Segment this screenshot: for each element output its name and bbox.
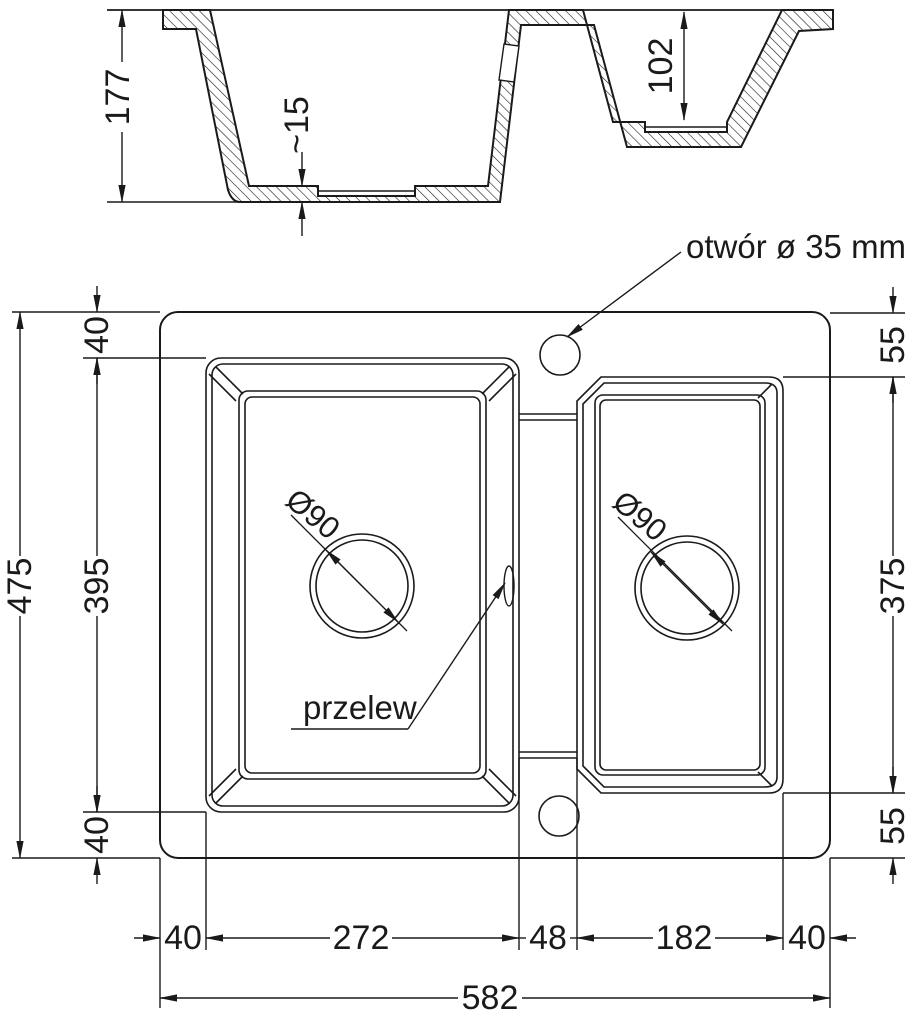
bowl-divider [519, 414, 577, 758]
dim-bottom-right-margin: 40 [788, 919, 826, 957]
section-overflow-gap [499, 44, 519, 82]
plan-dimension-lines [12, 286, 905, 1008]
dim-left-bowl-height: 395 [78, 558, 116, 615]
dim-bottom-thickness: ~15 [278, 96, 316, 154]
left-drain-diameter: Ø90 [279, 482, 346, 546]
dim-small-bowl-depth: 102 [642, 38, 680, 95]
overflow-label: przelew [303, 689, 417, 726]
drawing-canvas: 177 ~15 102 otwór ø 35 mm [0, 0, 915, 1024]
right-drain-diameter: Ø90 [606, 484, 673, 548]
dim-right-top-margin: 55 [874, 326, 912, 364]
sink-technical-drawing: 177 ~15 102 otwór ø 35 mm [0, 0, 915, 1024]
dim-right-bowl-width: 182 [656, 919, 713, 957]
plan-view [160, 312, 830, 858]
dim-total-depth: 177 [99, 69, 137, 126]
dim-bottom-left-margin: 40 [164, 919, 202, 957]
right-bowl [577, 377, 783, 793]
dim-right-bottom-margin: 55 [874, 807, 912, 845]
overflow-callout: przelew [291, 583, 505, 729]
section-body-hatched [163, 10, 833, 202]
drain-callouts [291, 515, 732, 631]
left-bowl-corner-chamfers [209, 367, 516, 803]
dim-divider-width: 48 [529, 919, 567, 957]
dim-total-width: 582 [462, 979, 519, 1017]
tap-hole-callout: otwór ø 35 mm [567, 228, 906, 337]
dim-left-bottom-margin: 40 [78, 816, 116, 854]
cross-section-view [107, 10, 833, 202]
dim-right-bowl-height: 375 [874, 558, 912, 615]
dim-total-height: 475 [1, 558, 39, 615]
accessory-hole [539, 796, 579, 836]
tap-hole-leader [567, 252, 681, 337]
tap-hole [540, 335, 580, 375]
dim-left-top-margin: 40 [78, 316, 116, 354]
tap-hole-label: otwór ø 35 mm [686, 228, 906, 265]
dim-left-bowl-width: 272 [333, 919, 390, 957]
left-bowl [206, 358, 519, 812]
